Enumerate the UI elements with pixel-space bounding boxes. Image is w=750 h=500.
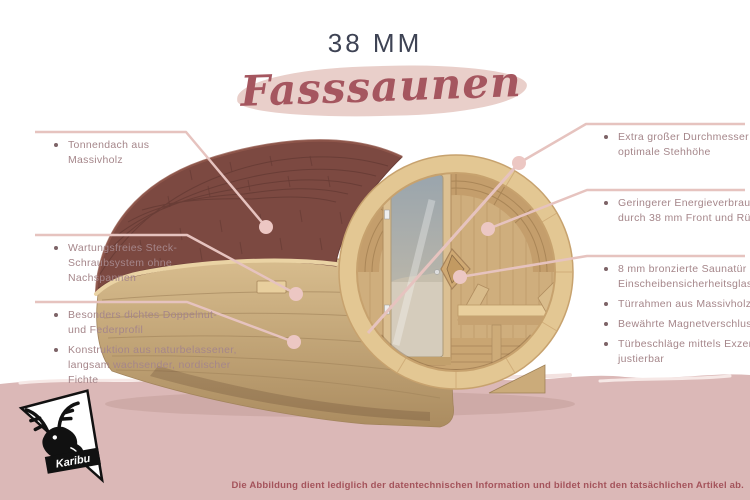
callout-item: Bewährte Magnetverschlusstechnik [602, 317, 750, 332]
bullet-dot-icon [604, 322, 608, 326]
bullet-dot-icon [54, 348, 58, 352]
bullet-dot-icon [54, 313, 58, 317]
callout-right-3: 8 mm bronzierte Saunatür aus Einscheiben… [602, 262, 750, 372]
callout-left-3: Besonders dichtes Doppelnut- und Federpr… [52, 308, 232, 393]
bullet-dot-icon [54, 246, 58, 250]
callout-right-2: Geringerer Energieverbrauch durch 38 mm … [602, 196, 750, 231]
callout-dot [453, 270, 467, 284]
page-title: Fasssaunen [234, 57, 528, 116]
diameter-line [368, 163, 519, 333]
callout-dot [289, 287, 303, 301]
callout-dot [287, 335, 301, 349]
callout-dot [481, 222, 495, 236]
infographic: 38 MM Fasssaunen Tonnendach aus Massivho… [0, 0, 750, 500]
callout-item: Konstruktion aus naturbelassener, langsa… [52, 343, 232, 388]
callout-item: Besonders dichtes Doppelnut- und Federpr… [52, 308, 232, 338]
callout-item: 8 mm bronzierte Saunatür aus Einscheiben… [602, 262, 750, 292]
callout-item: Tonnendach aus Massivholz [52, 138, 232, 168]
bullet-dot-icon [604, 135, 608, 139]
disclaimer-text: Die Abbildung dient lediglich der datent… [231, 480, 744, 491]
callout-item: Wartungsfreies Steck- Schraubsystem ohne… [52, 241, 232, 286]
callout-left-2: Wartungsfreies Steck- Schraubsystem ohne… [52, 241, 232, 291]
callout-left-1: Tonnendach aus Massivholz [52, 138, 232, 173]
bullet-dot-icon [604, 342, 608, 346]
bullet-dot-icon [604, 267, 608, 271]
bullet-dot-icon [604, 201, 608, 205]
callout-dot [512, 156, 526, 170]
callout-item: Geringerer Energieverbrauch durch 38 mm … [602, 196, 750, 226]
callout-item: Türrahmen aus Massivholz [602, 297, 750, 312]
size-label: 38 MM [0, 28, 750, 59]
bullet-dot-icon [54, 143, 58, 147]
bullet-dot-icon [604, 302, 608, 306]
callout-item: Extra großer Durchmesser für eine optima… [602, 130, 750, 160]
karibu-logo: Karibu [8, 386, 123, 498]
callout-dot [259, 220, 273, 234]
callout-right-1: Extra großer Durchmesser für eine optima… [602, 130, 750, 165]
callout-item: Türbeschläge mittels Exzenter justierbar [602, 337, 750, 367]
callout-dots [259, 156, 526, 349]
